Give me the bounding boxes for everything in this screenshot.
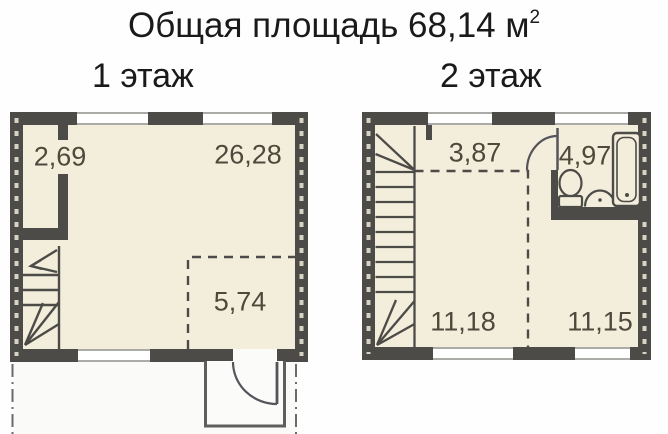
area-label-kitchen: 5,74 (214, 287, 267, 318)
porch-outline (206, 361, 285, 426)
area-label-hall: 3,87 (449, 138, 502, 169)
wall-stub (426, 125, 432, 140)
area-label-room-right: 11,15 (567, 307, 633, 338)
area-label-bathroom: 4,97 (559, 141, 612, 172)
floorplan-canvas (0, 0, 668, 434)
window-icon (78, 349, 150, 362)
bathtub-icon (613, 133, 640, 206)
toilet-icon (559, 170, 582, 207)
area-label-closet: 2,69 (34, 142, 87, 173)
area-label-main-room: 26,28 (214, 140, 282, 171)
floorplan-page: Общая площадь 68,14 м2 1 этаж 2 этаж (0, 0, 668, 434)
area-label-room-left: 11,18 (430, 307, 496, 338)
entrance-door-opening (233, 349, 277, 362)
